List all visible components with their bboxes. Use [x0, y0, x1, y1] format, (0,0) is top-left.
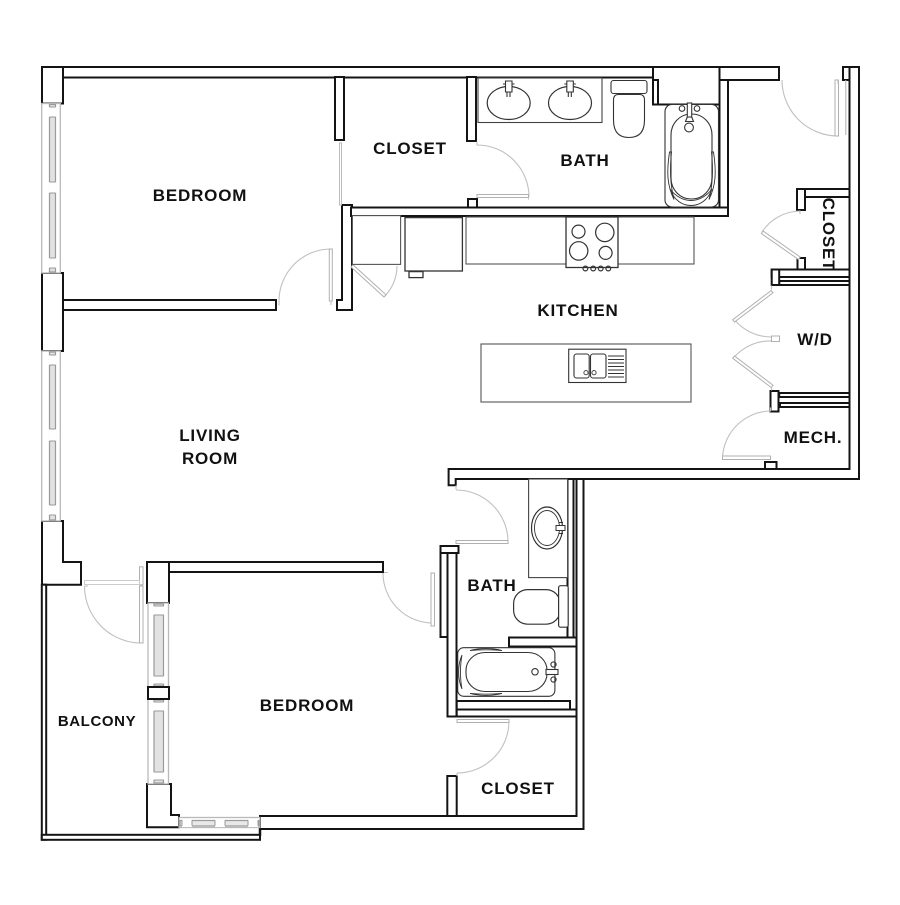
svg-text:ROOM: ROOM: [182, 449, 238, 468]
svg-text:MECH.: MECH.: [784, 428, 843, 447]
svg-text:LIVING: LIVING: [179, 426, 240, 445]
svg-text:BEDROOM: BEDROOM: [260, 696, 354, 715]
svg-text:KITCHEN: KITCHEN: [537, 301, 618, 320]
svg-text:BEDROOM: BEDROOM: [153, 186, 247, 205]
svg-text:BALCONY: BALCONY: [58, 713, 136, 730]
svg-text:CLOSET: CLOSET: [819, 198, 838, 272]
svg-text:W/D: W/D: [797, 330, 832, 349]
svg-text:CLOSET: CLOSET: [373, 139, 447, 158]
svg-text:CLOSET: CLOSET: [481, 779, 555, 798]
svg-text:BATH: BATH: [467, 576, 516, 595]
svg-text:BATH: BATH: [560, 151, 609, 170]
